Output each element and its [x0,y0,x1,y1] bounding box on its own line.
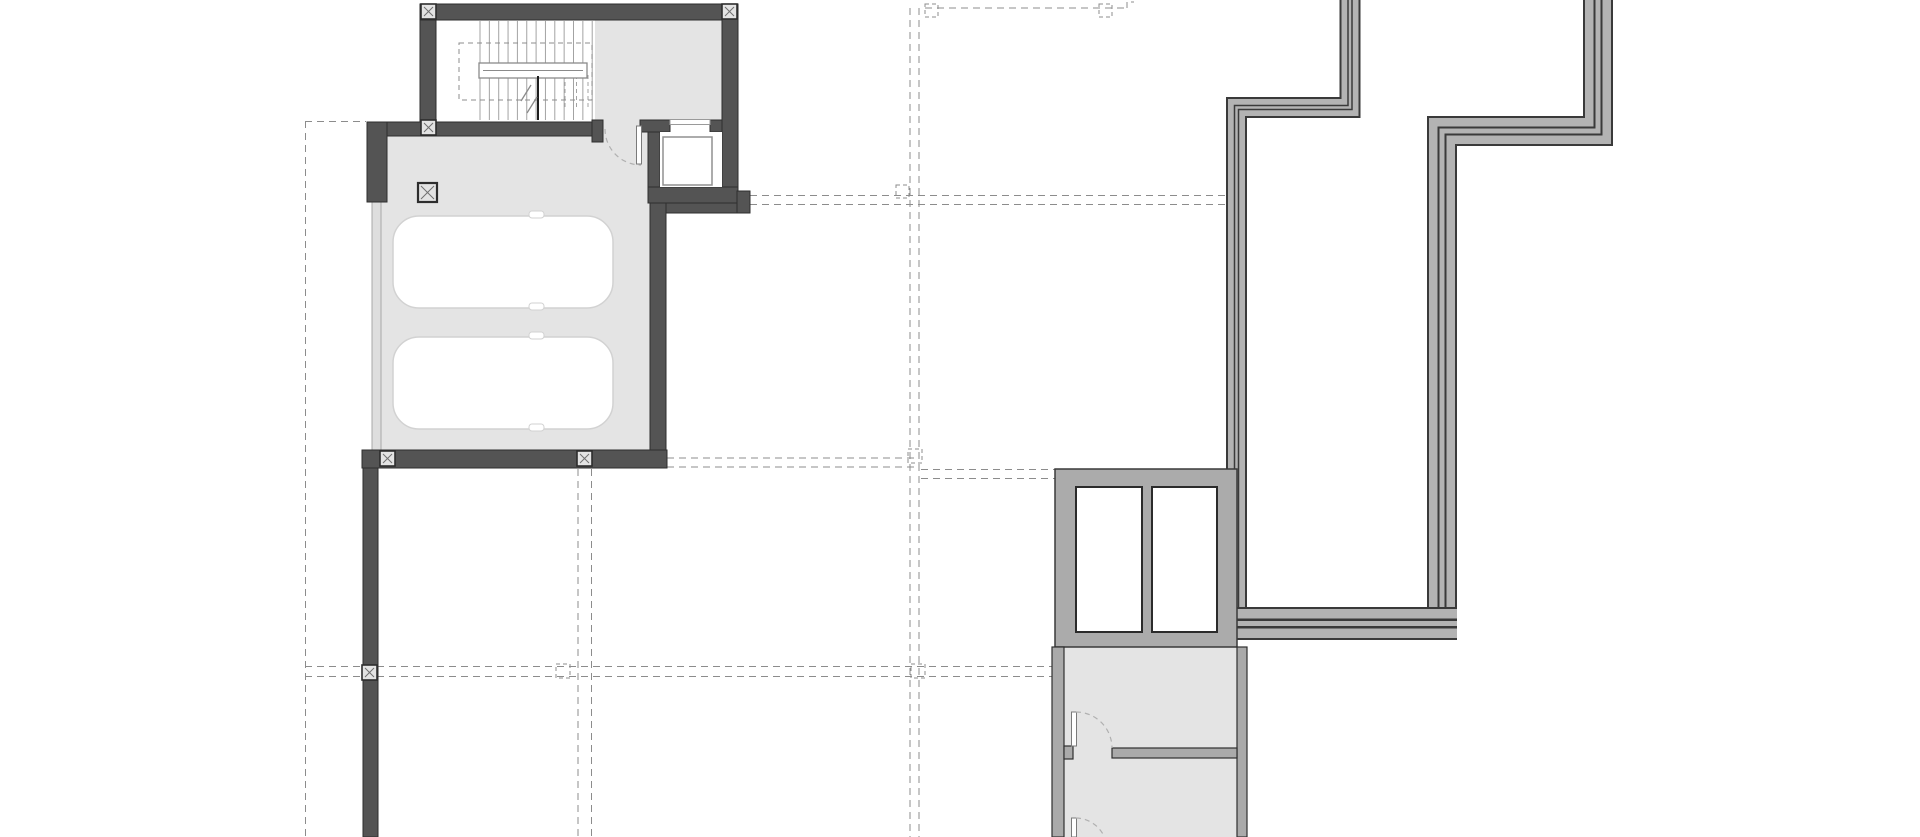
retaining-wall-east-layer-0 [1442,0,1598,624]
retaining-wall-east-layer-1 [1442,0,1598,624]
grid-joint-marker [896,185,909,198]
window-pane-1 [1076,487,1142,632]
garage-door-leaf [637,126,642,164]
retaining-wall-east-layer-2 [1442,0,1598,624]
rooms-door-jamb [1064,746,1073,759]
elevator-car [663,137,712,185]
stair-break-mark [527,97,537,113]
elevator-bottom-wall [648,187,738,203]
car-mirror [529,303,544,310]
parked-car-1 [393,216,613,308]
window-pane-2 [1152,487,1217,632]
retaining-wall-west-layer-1 [1237,0,1351,624]
site-boundary-wall-west [363,468,378,837]
garage-left-thin-wall [372,202,381,450]
stair-landing-floor [595,20,722,122]
rooms-floor [1064,647,1237,837]
projection-tick-top [1127,2,1134,8]
car-mirror [529,211,544,218]
garage-bottom-wall [362,450,667,468]
band-right-stub [737,191,750,213]
car-mirror [529,424,544,431]
garage-right-wall [650,203,666,468]
parked-car-2 [393,337,613,429]
rooms-left-wall [1052,647,1064,837]
elevator-door [670,120,710,125]
rooms-right-wall [1237,647,1247,837]
elevator-door-stub-right [710,120,722,132]
grid-joint-marker [1099,4,1112,17]
garage-door-jamb [592,120,603,142]
retaining-wall-west-layer-0 [1237,0,1351,624]
stair-top-wall [420,4,738,20]
garage-left-upper-wall [367,122,387,202]
retaining-wall-east-layer-3 [1442,0,1598,624]
retaining-wall-west-layer-2 [1237,0,1351,624]
floor-plan [0,0,1920,837]
stair-left-wall [420,20,436,122]
retaining-wall-west-layer-3 [1237,0,1351,624]
stair-elevator-right-wall [722,18,738,203]
grid-joint-marker [925,4,938,17]
room-door-1-leaf [1072,712,1077,746]
elevator-door-stub-left [640,120,670,132]
under-shaft-band [653,203,750,213]
room-door-2-leaf [1072,818,1077,837]
garage-top-wall [367,122,592,136]
rooms-divider-wall [1112,748,1237,758]
floor-plan-svg [0,0,1920,837]
stair-break-mark [521,85,531,101]
car-mirror [529,332,544,339]
